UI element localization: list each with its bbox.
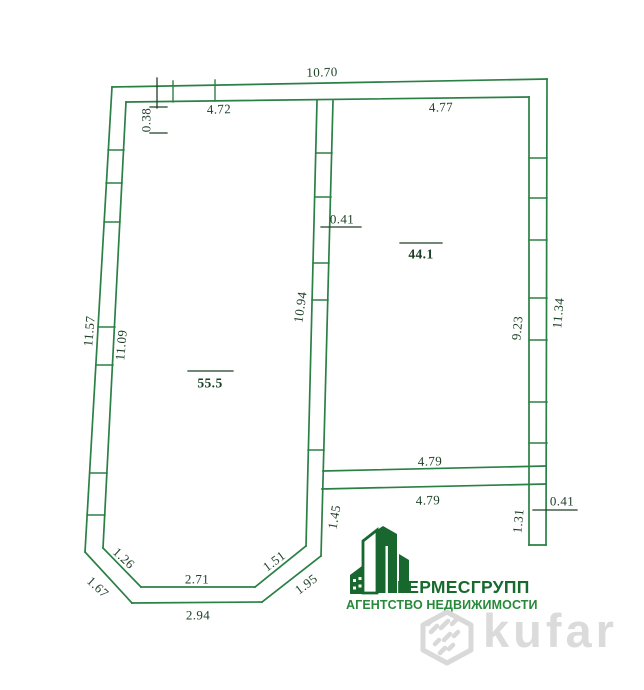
dim-chamfer-left-inner: 1.26 [110,544,138,572]
floor-plan-scan: 10.70 4.72 4.77 0.38 11.57 11.09 10.94 0… [0,0,644,690]
dimension-lines [150,78,577,510]
dim-middle-wall-length: 10.94 [290,290,309,323]
kufar-brand-text: kufar [483,607,618,654]
area-right-room: 44.1 [408,247,433,262]
wall-bottom-outer [132,602,262,603]
dim-right-inner: 9.23 [508,315,525,341]
dim-bottom-inner: 2.71 [185,572,209,587]
dim-top-left-room: 4.72 [207,101,232,117]
dim-bottom-outer: 2.94 [186,608,210,623]
dim-middle-wall-stub: 1.45 [324,504,343,531]
wall-partition-bottom [322,484,546,489]
area-left-room: 55.5 [197,376,222,391]
dim-top-total: 10.70 [306,64,338,80]
kufar-watermark: kufar [412,605,644,677]
tower-slit [386,546,388,593]
tower-left-facet [363,530,377,593]
dim-middle-wall-thickness: 0.41 [330,212,354,227]
dim-chamfer-right-inner: 1.51 [260,548,288,575]
dim-right-outer: 11.34 [549,297,567,329]
dim-partition-bottom: 4.79 [416,492,441,508]
wall-right-outer [546,79,547,545]
dim-left-inner: 11.09 [112,329,130,361]
dim-right-wall-thickness: 0.41 [550,494,574,509]
floor-plan-drawing: 10.70 4.72 4.77 0.38 11.57 11.09 10.94 0… [0,0,644,690]
logo-company-name: ГЕРМЕСГРУПП [397,577,530,598]
dim-top-wall-thickness: 0.38 [139,108,154,132]
dim-partition-top: 4.79 [418,453,443,469]
dim-top-right-room: 4.77 [429,99,454,115]
wall-ticks [87,80,547,515]
dim-left-outer: 11.57 [80,315,98,347]
agency-logo: ГЕРМЕСГРУПП АГЕНТСТВО НЕДВИЖИМОСТИ [344,521,529,616]
wall-middle-left [306,101,317,546]
wall-top-outer [112,79,547,87]
wall-top-inner [126,97,529,102]
badge-dashes [428,620,458,653]
wall-middle-right [321,101,333,556]
